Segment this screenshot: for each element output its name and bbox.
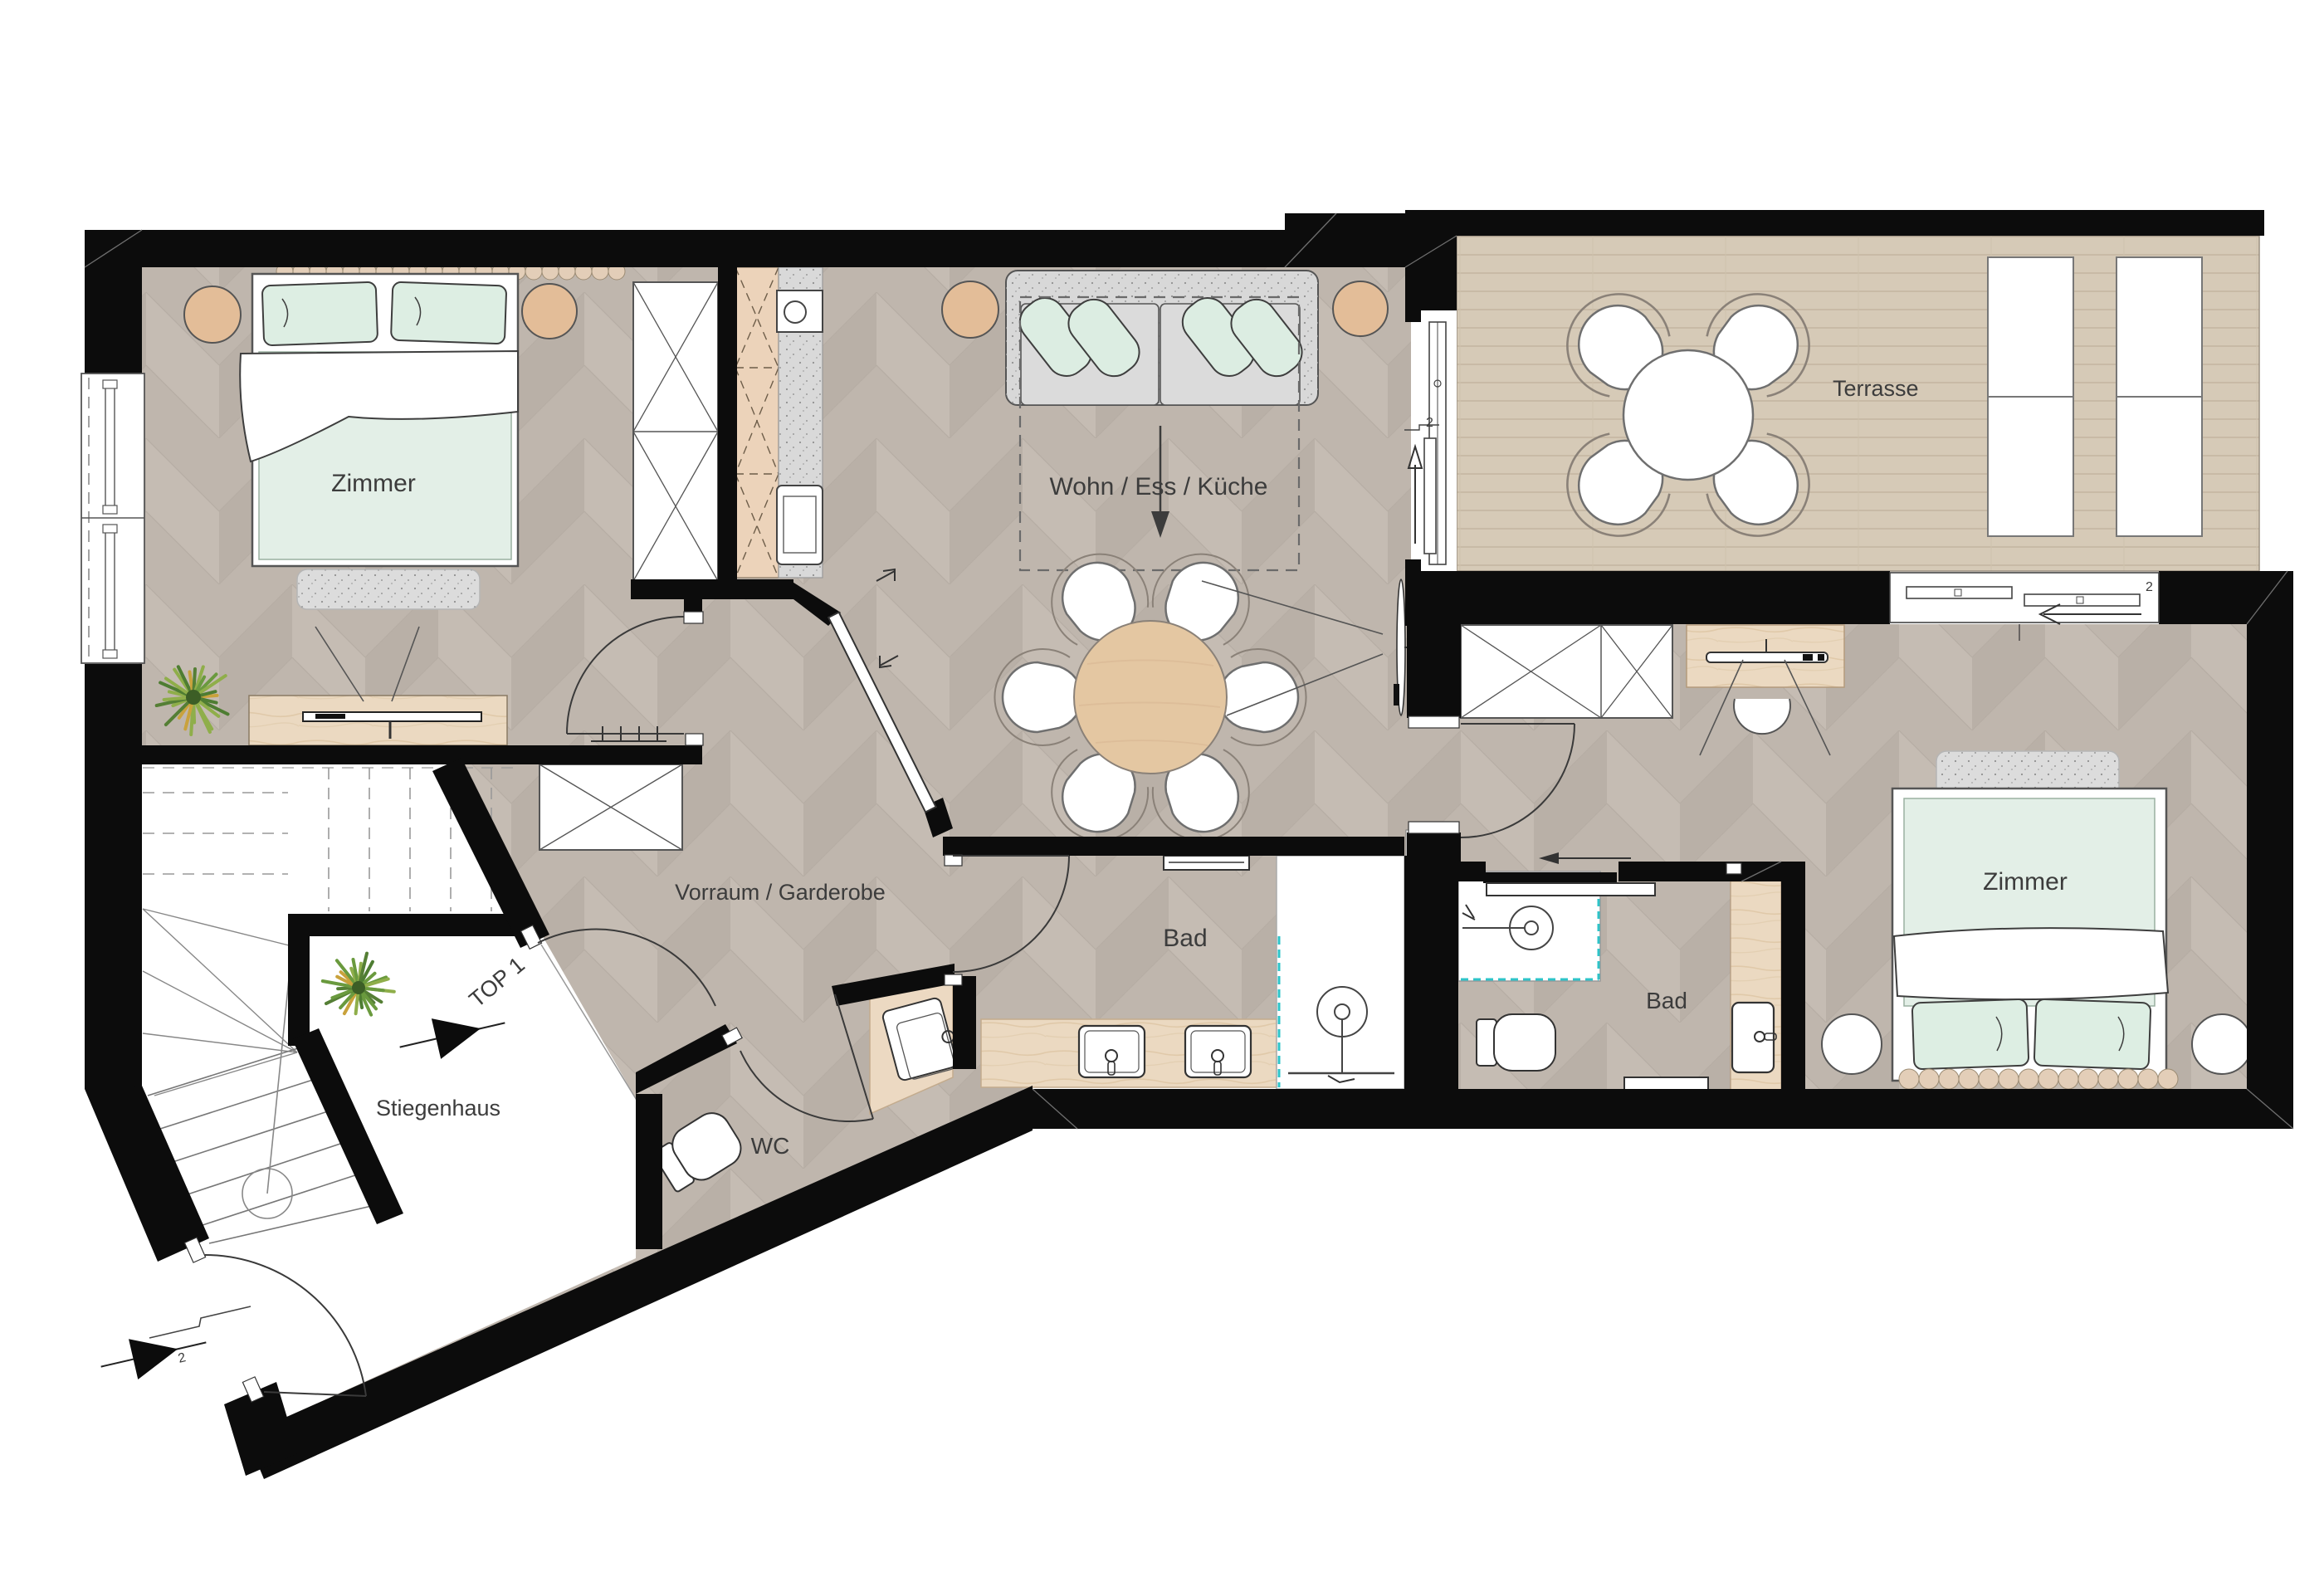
svg-text:2: 2	[2146, 580, 2153, 594]
svg-text:Bad: Bad	[1163, 925, 1207, 952]
svg-text:Terrasse: Terrasse	[1833, 376, 1919, 401]
svg-text:2: 2	[1426, 416, 1433, 430]
svg-text:Bad: Bad	[1646, 988, 1687, 1013]
svg-text:Wohn / Ess / Küche: Wohn / Ess / Küche	[1050, 473, 1268, 500]
svg-text:Vorraum / Garderobe: Vorraum / Garderobe	[675, 880, 886, 905]
svg-text:Zimmer: Zimmer	[331, 470, 416, 497]
svg-text:Stiegenhaus: Stiegenhaus	[376, 1096, 500, 1120]
svg-text:Zimmer: Zimmer	[1983, 868, 2068, 896]
svg-text:WC: WC	[751, 1133, 790, 1159]
